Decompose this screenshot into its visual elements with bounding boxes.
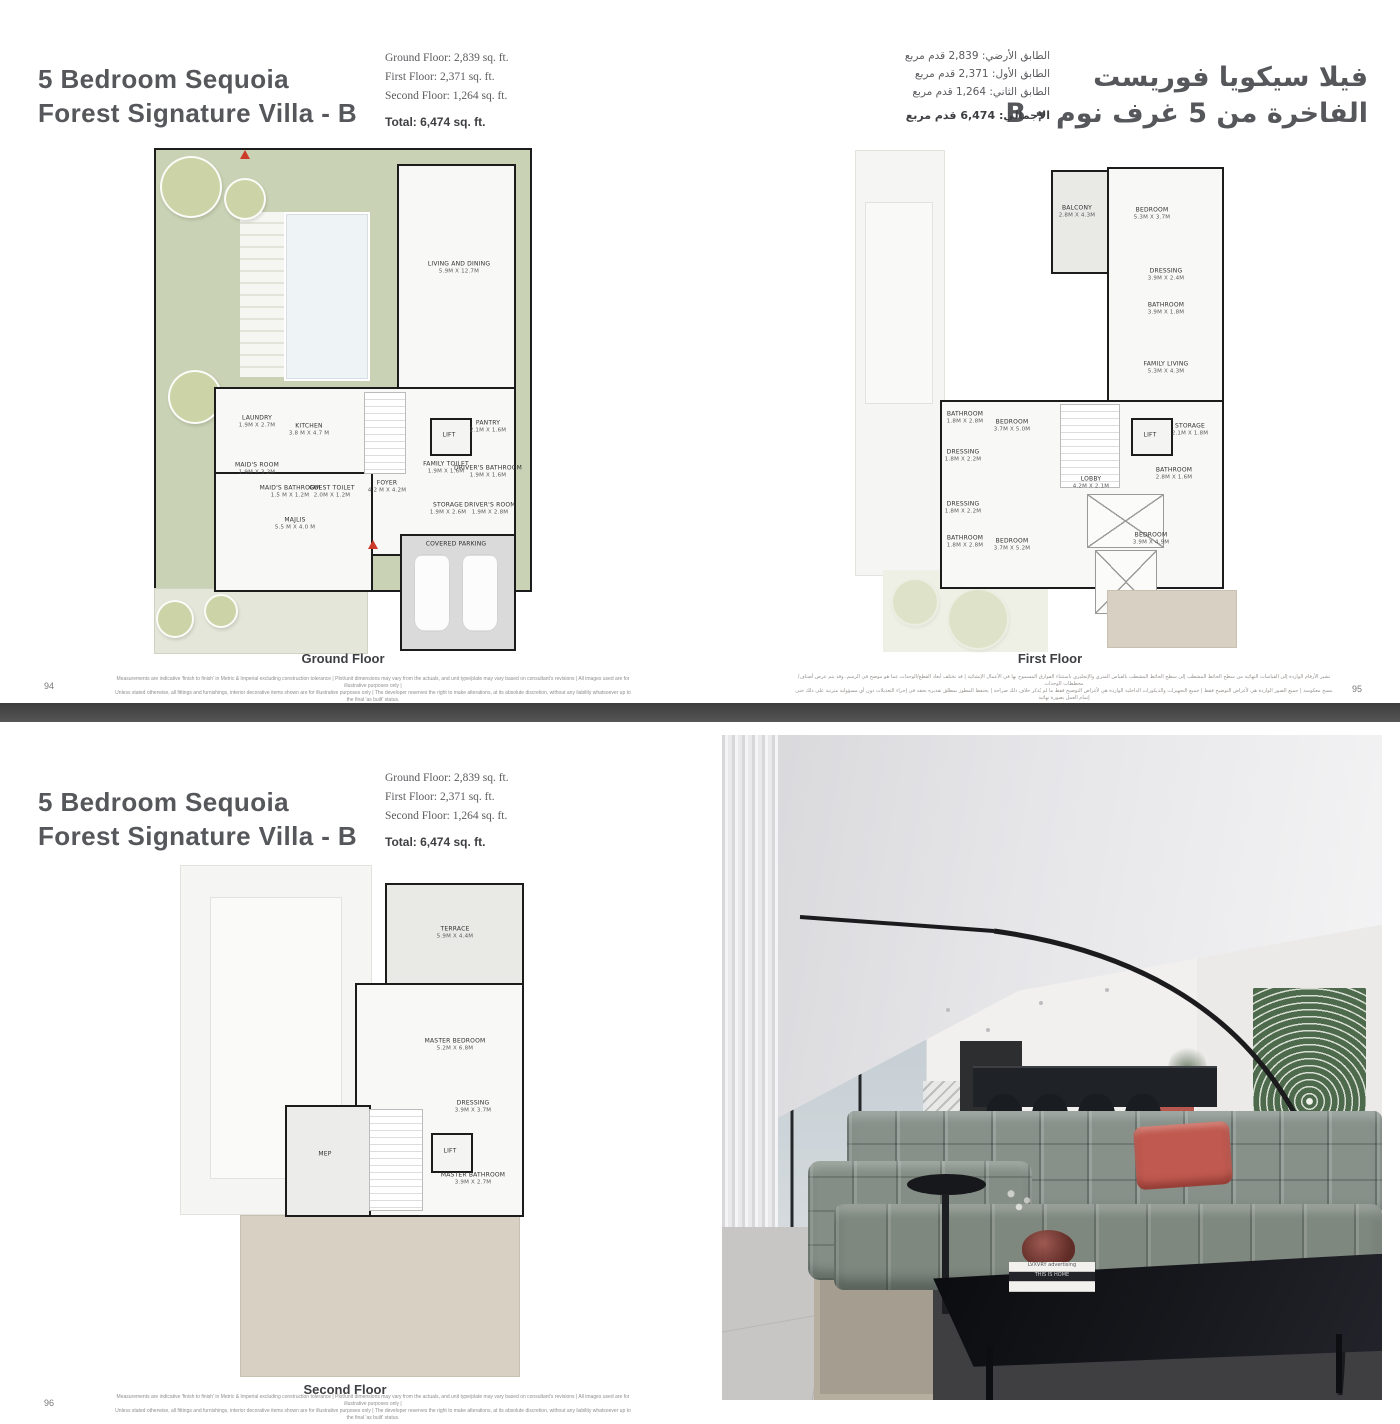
- car-icon: [462, 554, 498, 632]
- room-label: GUEST TOILET2.0M X 1.2M: [309, 485, 355, 500]
- coffee-table-leg: [1336, 1334, 1343, 1394]
- room-label: LIVING AND DINING5.9M X 12.7M: [428, 261, 490, 276]
- coral-cushion: [1132, 1121, 1232, 1191]
- page-number-94: 94: [44, 681, 54, 691]
- page-number-95: 95: [1352, 684, 1362, 694]
- room-label: FAMILY LIVING5.3M X 4.3M: [1144, 361, 1189, 376]
- side-table: [907, 1174, 986, 1195]
- room-label: BATHROOM3.9M X 1.8M: [1148, 302, 1184, 317]
- car-icon: [414, 554, 450, 632]
- title-line2: Forest Signature Villa - B: [38, 96, 357, 130]
- title-ar-line2: الفاخرة من 5 غرف نوم - B: [1000, 96, 1368, 132]
- tree-icon: [891, 578, 939, 626]
- stat-second-floor: Second Floor: 1,264 sq. ft.: [385, 810, 509, 822]
- balcony-area: [1051, 170, 1113, 274]
- disclaimer-en-bottom: Measurements are indicative 'finish to f…: [112, 1394, 634, 1422]
- room-label: LOBBY4.2M X 2.1M: [1073, 476, 1109, 491]
- room-label: BATHROOM1.8M X 2.8M: [947, 411, 983, 426]
- room-label: DRESSING1.8M X 2.2M: [945, 501, 981, 516]
- room-label: KITCHEN3.8 M X 4.7 M: [289, 423, 329, 438]
- disclaimer-en-top: Measurements are indicative 'finish to f…: [112, 676, 634, 704]
- stat-ground-floor: Ground Floor: 2,839 sq. ft.: [385, 772, 509, 784]
- room-label: LIFT: [443, 431, 456, 439]
- tree-icon: [160, 156, 222, 218]
- entrance-marker-icon: [368, 540, 378, 549]
- stat-ar-second: الطابق الثاني: 1,264 قدم مربع: [888, 86, 1050, 98]
- page-title-en-top: 5 Bedroom Sequoia Forest Signature Villa…: [38, 62, 357, 130]
- room-label: DRESSING1.8M X 2.2M: [945, 449, 981, 464]
- title-line1: 5 Bedroom Sequoia: [38, 785, 357, 819]
- stat-first-floor: First Floor: 2,371 sq. ft.: [385, 71, 509, 83]
- terrace-below: [1107, 590, 1237, 648]
- tree-icon: [224, 178, 266, 220]
- stat-ar-first: الطابق الأول: 2,371 قدم مربع: [888, 68, 1050, 80]
- book-spine: THIS IS HOME: [1009, 1272, 1095, 1282]
- page-number-96: 96: [44, 1398, 54, 1408]
- room-label: DRESSING3.9M X 3.7M: [455, 1100, 491, 1115]
- room-label: STORAGE1.9M X 2.6M: [430, 502, 466, 517]
- mep-room: [285, 1105, 371, 1217]
- area-stats-en-top: Ground Floor: 2,839 sq. ft. First Floor:…: [385, 52, 509, 129]
- page-title-ar: فيلا سيكويا فوريست الفاخرة من 5 غرف نوم …: [1000, 60, 1368, 132]
- tree-icon: [204, 594, 238, 628]
- room-label: BEDROOM3.7M X 5.2M: [994, 538, 1030, 553]
- room-label: FOYER4.2 M X 4.2M: [368, 480, 406, 495]
- room-label: MAID'S ROOM1.9M X 3.2M: [235, 462, 279, 477]
- roof-terrace-paving: [240, 1215, 520, 1377]
- staircase: [364, 392, 406, 474]
- floor-caption-first: First Floor: [1018, 651, 1082, 666]
- title-ar-line1: فيلا سيكويا فوريست: [1000, 60, 1368, 96]
- tree-icon: [156, 600, 194, 638]
- second-floor-plan: TERRACE5.9M X 4.4M MASTER BEDROOM5.2M X …: [155, 865, 535, 1385]
- room-label: BEDROOM5.3M X 3.7M: [1134, 207, 1170, 222]
- room-label: MASTER BEDROOM5.2M X 6.8M: [425, 1038, 486, 1053]
- room-label: PANTRY2.1M X 1.6M: [470, 420, 506, 435]
- room-label: MASTER BATHROOM3.9M X 2.7M: [441, 1172, 505, 1187]
- coffee-table-leg: [986, 1347, 993, 1400]
- book-stack: LVXVRY advertising THIS IS HOME: [1009, 1262, 1095, 1293]
- stat-ar-total: الإجمالي: 6,474 قدم مربع: [888, 109, 1050, 122]
- room-label: BATHROOM2.8M X 1.6M: [1156, 467, 1192, 482]
- stat-ar-ground: الطابق الأرضي: 2,839 قدم مربع: [888, 50, 1050, 62]
- room-label: BEDROOM3.9M X 4.9M: [1133, 532, 1169, 547]
- ground-floor-plan: LIVING AND DINING5.9M X 12.7M KITCHEN3.8…: [152, 142, 532, 657]
- area-stats-ar: الطابق الأرضي: 2,839 قدم مربع الطابق الأ…: [888, 50, 1050, 122]
- book-spine: [1009, 1282, 1095, 1292]
- room-label: MEP: [318, 1150, 331, 1158]
- room-label: BEDROOM3.7M X 5.0M: [994, 419, 1030, 434]
- entrance-marker-icon: [240, 150, 250, 159]
- room-label: STORAGE2.1M X 1.8M: [1172, 423, 1208, 438]
- room-label: COVERED PARKING: [426, 540, 487, 548]
- room-label: BALCONY2.8M X 4.3M: [1059, 205, 1095, 220]
- stat-total: Total: 6,474 sq. ft.: [385, 115, 509, 129]
- stat-ground-floor: Ground Floor: 2,839 sq. ft.: [385, 52, 509, 64]
- staircase: [369, 1109, 423, 1211]
- first-floor-plan: BALCONY2.8M X 4.3M BEDROOM5.3M X 3.7M DR…: [855, 142, 1240, 657]
- dried-flower-sprig: [999, 1174, 1039, 1241]
- interior-render-photo: LVXVRY advertising THIS IS HOME: [722, 735, 1382, 1400]
- page-title-en-bottom: 5 Bedroom Sequoia Forest Signature Villa…: [38, 785, 357, 853]
- title-line1: 5 Bedroom Sequoia: [38, 62, 357, 96]
- room-label: LIFT: [444, 1147, 457, 1155]
- stat-total: Total: 6,474 sq. ft.: [385, 835, 509, 849]
- room-label: TERRACE5.9M X 4.4M: [437, 926, 473, 941]
- area-stats-en-bottom: Ground Floor: 2,839 sq. ft. First Floor:…: [385, 772, 509, 849]
- tree-icon: [947, 588, 1009, 650]
- room-label: DRIVER'S BATHROOM1.9M X 1.6M: [454, 465, 522, 480]
- living-dining-room: [397, 164, 516, 398]
- title-line2: Forest Signature Villa - B: [38, 819, 357, 853]
- room-label: LIFT: [1144, 431, 1157, 439]
- room-label: LAUNDRY1.9M X 2.7M: [239, 415, 275, 430]
- room-label: MAJLIS5.5 M X 4.0 M: [275, 517, 315, 532]
- stat-first-floor: First Floor: 2,371 sq. ft.: [385, 791, 509, 803]
- faded-footprint: [865, 202, 933, 404]
- disclaimer-ar: تشير الأرقام الواردة إلى القياسات النهائ…: [790, 674, 1338, 702]
- book-spine: LVXVRY advertising: [1009, 1262, 1095, 1272]
- floor-caption-ground: Ground Floor: [301, 651, 384, 666]
- room-label: DRIVER'S ROOM1.9M X 2.8M: [464, 502, 515, 517]
- section-divider: [0, 703, 1400, 722]
- pool: [284, 212, 370, 381]
- room-label: BATHROOM1.8M X 2.8M: [947, 535, 983, 550]
- pool-deck: [240, 212, 284, 377]
- brochure-spread: 5 Bedroom Sequoia Forest Signature Villa…: [0, 0, 1400, 1424]
- stat-second-floor: Second Floor: 1,264 sq. ft.: [385, 90, 509, 102]
- room-label: DRESSING3.9M X 2.4M: [1148, 268, 1184, 283]
